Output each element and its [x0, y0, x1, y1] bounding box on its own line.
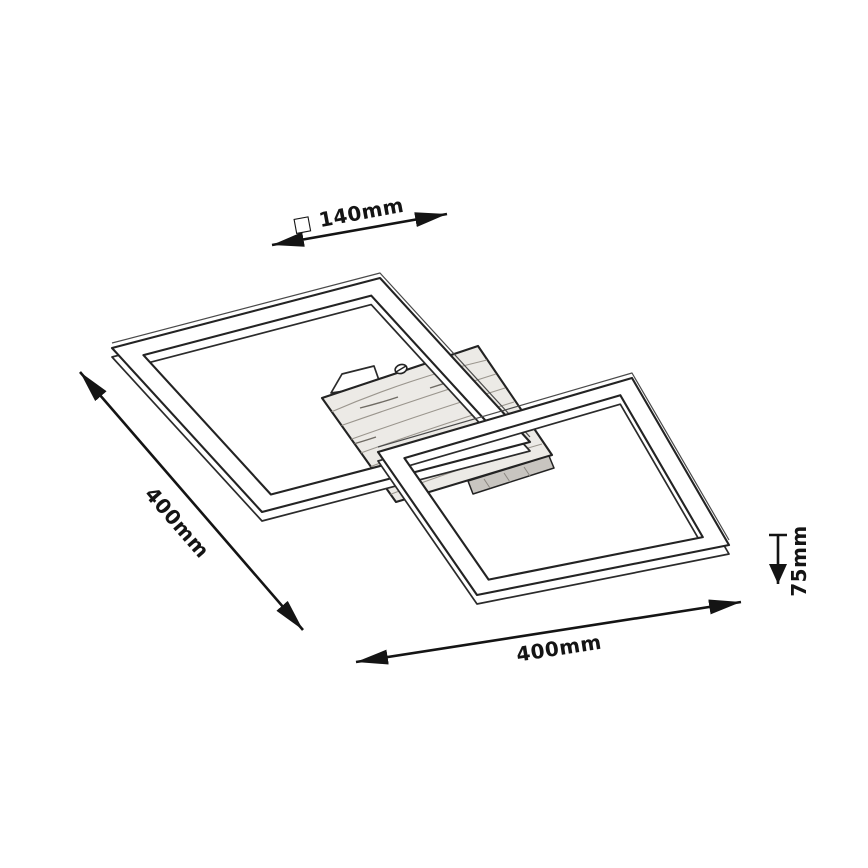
height-75mm-label: 75mm: [787, 525, 811, 597]
dimension-bottom-400mm: 400mm: [356, 602, 741, 667]
left-400mm-label: 400mm: [140, 482, 214, 563]
dimension-height-75mm: 75mm: [769, 525, 811, 597]
diagram-canvas: □ 140mm 400mm 400mm 75mm: [0, 0, 868, 868]
left-square-frame: [112, 273, 530, 521]
dimension-diagram: □ 140mm 400mm 400mm 75mm: [0, 0, 868, 868]
dimension-canopy-size: □ 140mm: [272, 193, 447, 245]
